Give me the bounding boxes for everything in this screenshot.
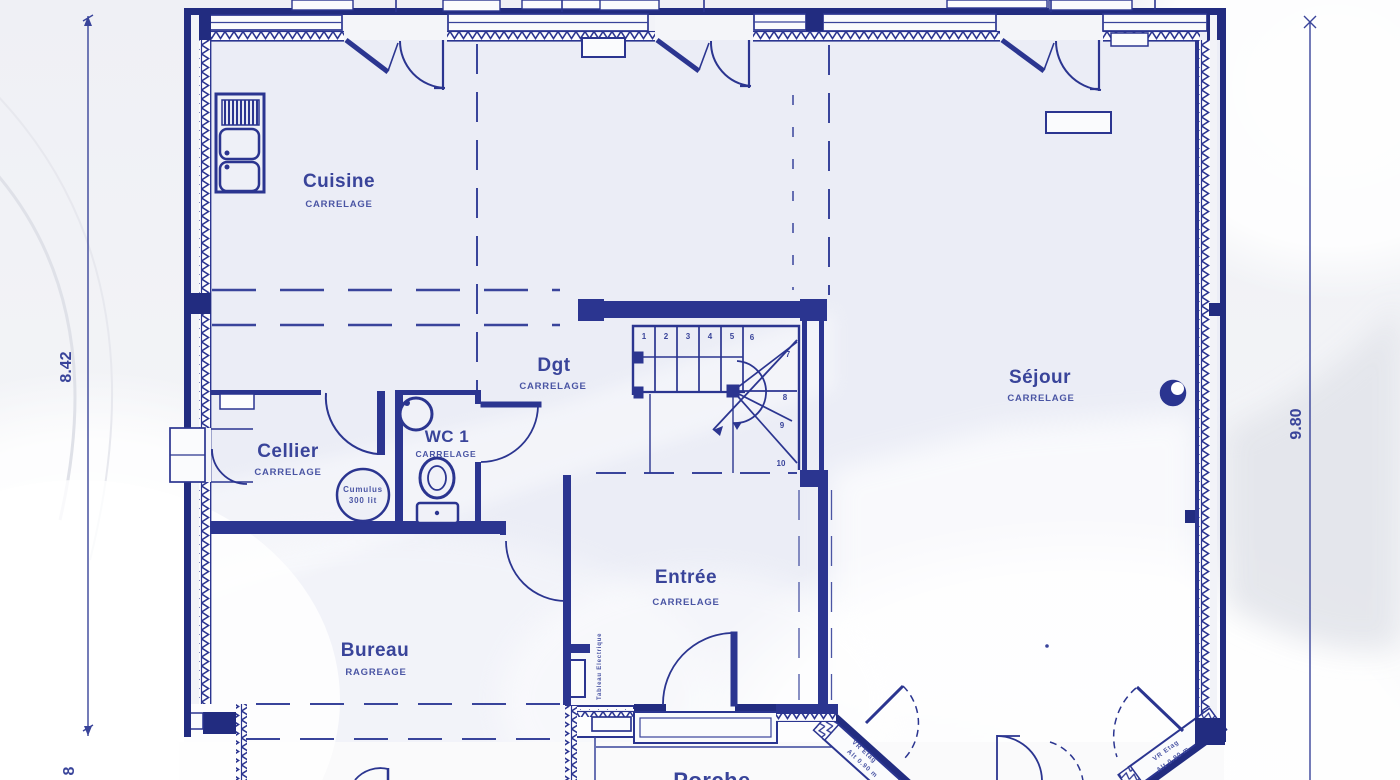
svg-text:Cuisine: Cuisine xyxy=(303,171,375,192)
svg-text:Tableau Electrique: Tableau Electrique xyxy=(597,633,603,700)
svg-text:8.42: 8.42 xyxy=(58,351,75,382)
svg-text:CARRELAGE: CARRELAGE xyxy=(1007,393,1074,404)
svg-text:WC 1: WC 1 xyxy=(425,427,470,446)
svg-text:9.80: 9.80 xyxy=(1288,408,1305,439)
svg-text:8: 8 xyxy=(61,766,78,775)
svg-text:RAGREAGE: RAGREAGE xyxy=(345,667,406,678)
svg-text:6: 6 xyxy=(750,333,755,342)
svg-text:5: 5 xyxy=(730,332,735,341)
svg-text:Entrée: Entrée xyxy=(655,567,717,588)
svg-text:CARRELAGE: CARRELAGE xyxy=(519,381,586,392)
svg-text:CARRELAGE: CARRELAGE xyxy=(652,597,719,608)
svg-text:8: 8 xyxy=(783,393,788,402)
svg-text:Bureau: Bureau xyxy=(341,640,409,661)
svg-text:CARRELAGE: CARRELAGE xyxy=(305,199,372,210)
svg-text:4: 4 xyxy=(708,332,713,341)
svg-text:1: 1 xyxy=(642,332,647,341)
svg-text:9: 9 xyxy=(780,421,785,430)
svg-text:Porche: Porche xyxy=(673,768,751,780)
svg-text:CARRELAGE: CARRELAGE xyxy=(415,449,476,459)
svg-text:7: 7 xyxy=(786,350,791,359)
svg-text:300 lit: 300 lit xyxy=(349,496,377,505)
svg-text:3: 3 xyxy=(686,332,691,341)
svg-text:2: 2 xyxy=(664,332,669,341)
svg-text:10: 10 xyxy=(777,459,786,468)
svg-text:CARRELAGE: CARRELAGE xyxy=(254,467,321,478)
svg-text:Cumulus: Cumulus xyxy=(343,485,383,494)
svg-text:Séjour: Séjour xyxy=(1009,367,1071,388)
svg-text:Cellier: Cellier xyxy=(257,441,319,462)
svg-text:Dgt: Dgt xyxy=(537,355,570,376)
